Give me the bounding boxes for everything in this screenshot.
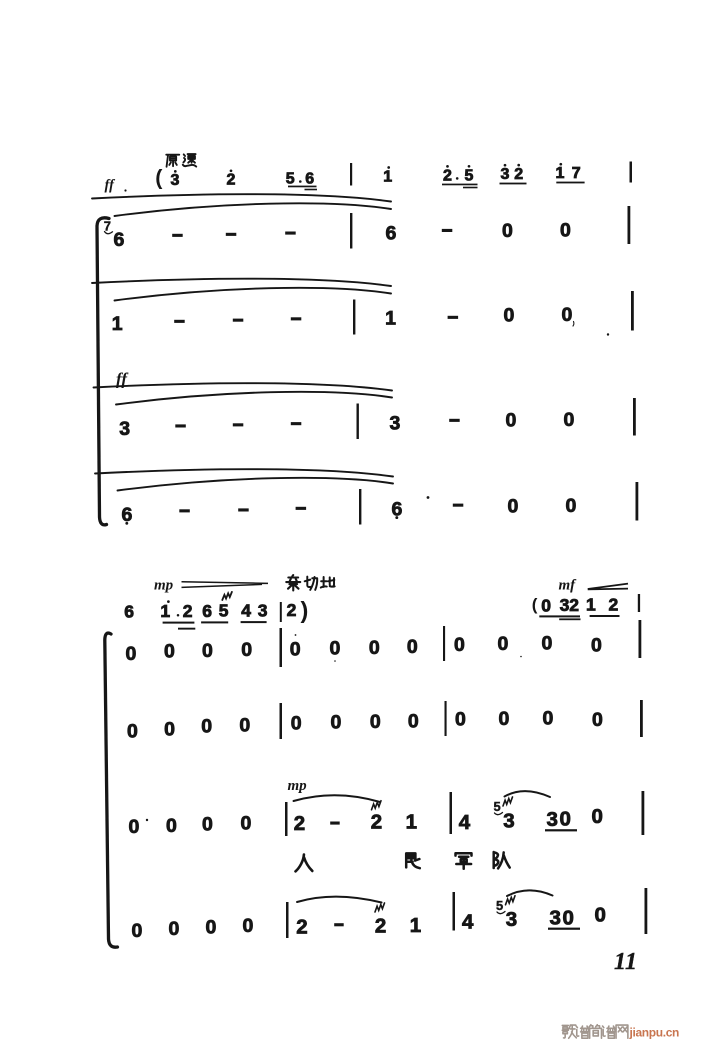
svg-text:2: 2 <box>375 914 386 937</box>
svg-text:0: 0 <box>164 641 175 663</box>
svg-text:0: 0 <box>132 920 143 942</box>
svg-text:2: 2 <box>296 915 307 938</box>
svg-text:0: 0 <box>560 808 571 831</box>
svg-text:1: 1 <box>410 914 421 937</box>
svg-text:6: 6 <box>386 222 397 244</box>
svg-text:0: 0 <box>126 643 137 665</box>
svg-text:5: 5 <box>494 799 501 814</box>
svg-text:0: 0 <box>504 305 515 327</box>
svg-text:1: 1 <box>385 308 396 330</box>
svg-text:0: 0 <box>331 712 342 734</box>
svg-text:3: 3 <box>503 809 514 832</box>
svg-text:4: 4 <box>459 811 471 834</box>
svg-text:1: 1 <box>383 168 392 185</box>
svg-text:2: 2 <box>183 601 193 621</box>
svg-text:0: 0 <box>291 713 302 735</box>
svg-text:2: 2 <box>443 167 452 184</box>
svg-text:0: 0 <box>455 709 466 731</box>
svg-text:0: 0 <box>241 813 252 835</box>
svg-text:3: 3 <box>560 595 570 615</box>
svg-text:5: 5 <box>286 170 295 187</box>
svg-text:11: 11 <box>614 949 637 975</box>
svg-text:1: 1 <box>556 165 565 182</box>
svg-text:0: 0 <box>166 815 177 837</box>
svg-text:0: 0 <box>591 635 602 657</box>
svg-text:0: 0 <box>508 496 519 518</box>
svg-text:3: 3 <box>506 908 517 931</box>
svg-text:0: 0 <box>454 634 465 656</box>
svg-text:0: 0 <box>499 708 510 730</box>
svg-text:6: 6 <box>124 602 134 622</box>
svg-text:0: 0 <box>498 633 509 655</box>
svg-text:1: 1 <box>586 595 596 615</box>
svg-text:3: 3 <box>171 172 180 189</box>
svg-text:2: 2 <box>609 594 619 614</box>
svg-text:mf: mf <box>559 578 578 594</box>
svg-text:6: 6 <box>305 170 314 187</box>
svg-text:5: 5 <box>219 601 229 621</box>
svg-text:0: 0 <box>563 906 574 929</box>
svg-text:3: 3 <box>390 412 401 434</box>
svg-text:0: 0 <box>562 304 573 326</box>
svg-text:0: 0 <box>408 711 419 733</box>
svg-text:2: 2 <box>294 812 305 835</box>
svg-text:2: 2 <box>514 166 523 183</box>
svg-text:2: 2 <box>227 172 236 189</box>
svg-text:0: 0 <box>564 409 575 431</box>
svg-text:(: ( <box>532 595 538 614</box>
svg-text:): ) <box>301 597 309 623</box>
svg-text:0: 0 <box>595 904 606 927</box>
svg-text:0: 0 <box>369 637 380 659</box>
svg-text:2: 2 <box>287 600 297 620</box>
svg-text:0: 0 <box>542 633 553 655</box>
svg-text:0: 0 <box>202 640 213 662</box>
svg-text:5: 5 <box>496 898 503 913</box>
svg-text:0: 0 <box>330 638 341 660</box>
svg-text:mp: mp <box>154 578 174 594</box>
svg-text:1: 1 <box>160 601 170 621</box>
svg-text:3: 3 <box>547 808 558 831</box>
svg-text:1: 1 <box>406 810 417 833</box>
svg-text:0: 0 <box>543 708 554 730</box>
svg-text:0: 0 <box>502 220 513 242</box>
svg-text:0: 0 <box>592 805 603 828</box>
svg-text:2: 2 <box>371 811 382 834</box>
svg-text:0: 0 <box>407 636 418 658</box>
svg-text:1: 1 <box>112 313 123 335</box>
svg-text:0: 0 <box>127 721 138 743</box>
svg-text:0: 0 <box>370 711 381 733</box>
svg-text:0: 0 <box>560 220 571 242</box>
svg-text:0: 0 <box>592 709 603 731</box>
svg-text:(: ( <box>155 166 163 190</box>
svg-text:mp: mp <box>288 778 308 794</box>
svg-text:6: 6 <box>114 229 125 251</box>
svg-text:6: 6 <box>202 601 212 621</box>
svg-text:0: 0 <box>239 715 250 737</box>
svg-text:4: 4 <box>241 601 251 621</box>
svg-text:jianpu.cn: jianpu.cn <box>629 1026 680 1040</box>
svg-text:0: 0 <box>164 719 175 741</box>
svg-text:4: 4 <box>462 911 474 934</box>
svg-text:3: 3 <box>258 600 268 620</box>
svg-text:0: 0 <box>243 915 254 937</box>
svg-text:5: 5 <box>465 167 474 184</box>
svg-text:3: 3 <box>501 166 510 183</box>
svg-text:7: 7 <box>572 165 581 182</box>
svg-text:0: 0 <box>129 816 140 838</box>
svg-text:0: 0 <box>541 595 551 615</box>
svg-text:0: 0 <box>206 917 217 939</box>
svg-text:0: 0 <box>506 409 517 431</box>
svg-text:0: 0 <box>290 639 301 661</box>
svg-text:0: 0 <box>169 918 180 940</box>
svg-text:2: 2 <box>569 595 579 615</box>
svg-text:3: 3 <box>119 418 130 440</box>
svg-text:0: 0 <box>202 814 213 836</box>
svg-text:0: 0 <box>201 716 212 738</box>
svg-text:0: 0 <box>241 639 252 661</box>
svg-text:0: 0 <box>566 495 577 517</box>
svg-text:3: 3 <box>550 907 561 930</box>
